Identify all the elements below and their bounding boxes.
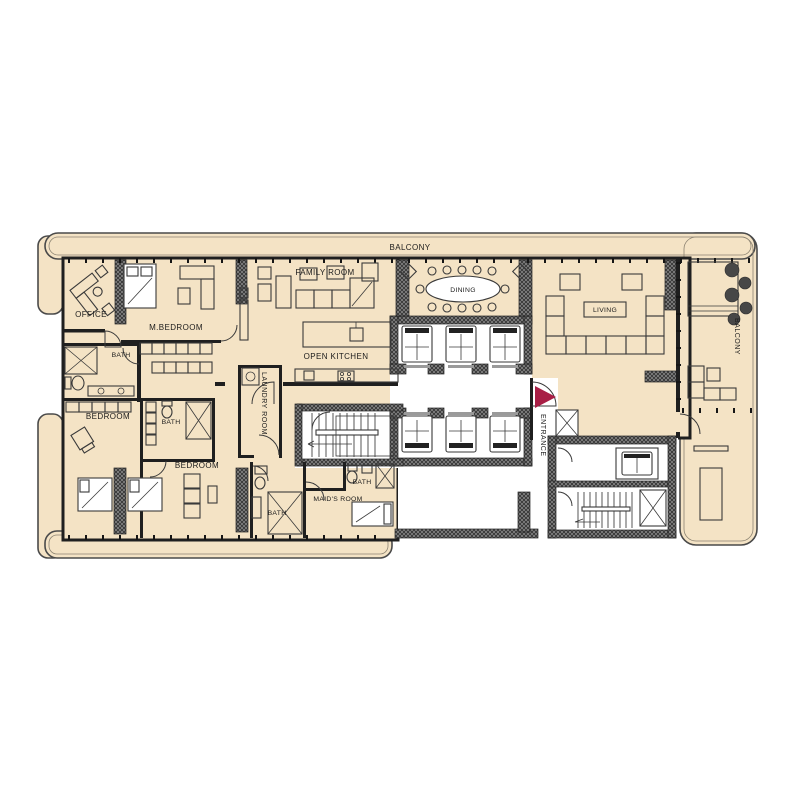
elevator-bank-upper — [402, 326, 520, 368]
label-bedroom-left: BEDROOM — [86, 412, 130, 421]
label-bath-master: BATH — [112, 352, 131, 359]
label-dining: DINING — [450, 287, 476, 294]
elevator-icon — [446, 326, 476, 368]
label-bedroom-bottom: BEDROOM — [175, 461, 219, 470]
elevator-icon — [490, 326, 520, 368]
service-elevator-icon — [616, 448, 658, 479]
bed-icon — [352, 502, 393, 526]
label-laundry-room: LAUNDRY ROOM — [260, 372, 267, 435]
floor-plan: BALCONY FAMILY ROOM DINING LIVING OFFICE… — [0, 0, 800, 800]
shaft-icon — [640, 490, 666, 526]
elevator-icon — [490, 412, 520, 452]
label-living: LIVING — [593, 307, 617, 314]
label-open-kitchen: OPEN KITCHEN — [304, 352, 369, 361]
label-bath-center: BATH — [162, 419, 181, 426]
floor-plan-page: BALCONY FAMILY ROOM DINING LIVING OFFICE… — [0, 0, 800, 800]
label-balcony-right: BALCONY — [733, 318, 740, 355]
bed-icon — [78, 478, 112, 511]
label-maids-room: MAID'S ROOM — [313, 496, 362, 503]
bed-icon — [128, 478, 162, 511]
label-m-bedroom: M.BEDROOM — [149, 323, 203, 332]
label-family-room: FAMILY ROOM — [295, 268, 354, 277]
elevator-icon — [402, 326, 432, 368]
label-bath-maid: BATH — [353, 479, 372, 486]
label-bath-bottom: BATH — [268, 510, 287, 517]
label-entrance: ENTRANCE — [539, 414, 546, 457]
elevator-icon — [446, 412, 476, 452]
bed-icon — [124, 264, 156, 308]
label-balcony-top: BALCONY — [389, 243, 430, 252]
shaft-icon — [556, 410, 578, 436]
elevator-bank-lower — [402, 412, 520, 452]
elevator-icon — [402, 412, 432, 452]
label-office: OFFICE — [75, 310, 107, 319]
